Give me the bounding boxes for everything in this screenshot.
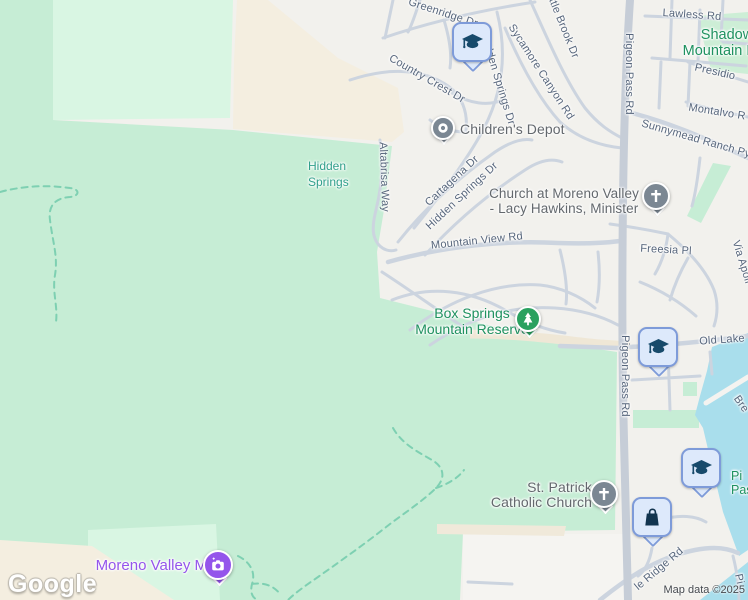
poi-label-childrens-depot[interactable]: Children's Depot — [460, 121, 565, 137]
tree-icon — [520, 311, 536, 327]
church-pin-1[interactable] — [642, 182, 670, 218]
park-label-line: Shadow — [672, 27, 748, 43]
map-viewport[interactable]: Greenridge Dr Little Brook Dr Lawless Rd… — [0, 0, 748, 600]
camera-icon — [209, 556, 227, 574]
google-logo[interactable]: Google — [8, 570, 97, 599]
poi-label-church-moreno[interactable]: Church at Moreno Valley - Lacy Hawkins, … — [484, 186, 644, 216]
poi-label-st-patrick[interactable]: St. Patrick Catholic Church — [440, 480, 592, 510]
poi-label-line: - Lacy Hawkins, Minister — [484, 201, 644, 216]
area-label-line: Springs — [308, 174, 349, 190]
street-label-altabrisa: Altabrisa Way — [377, 142, 391, 212]
shopping-pin[interactable] — [632, 497, 672, 549]
map-attribution: Map data ©2025 — [664, 584, 746, 596]
area-label-line: Hidden — [308, 158, 349, 174]
school-pin-2[interactable] — [638, 327, 678, 379]
street-label-pigeon-pass-top: Pigeon Pass Rd — [623, 33, 635, 115]
area-label-hidden-springs: Hidden Springs — [308, 158, 349, 190]
poi-label-line: Catholic Church — [440, 495, 592, 510]
park-label-shadow-mountain[interactable]: Shadow Mountain Pas — [672, 27, 748, 59]
poi-label-line: St. Patrick — [440, 480, 592, 495]
park-label-line: Mountain Pas — [672, 43, 748, 59]
childrens-depot-pin[interactable] — [431, 116, 455, 147]
graduation-cap-icon — [460, 30, 484, 54]
area-label-pigeon-pass: Pi Pass — [731, 469, 748, 497]
shopping-bag-icon — [640, 505, 664, 529]
school-pin-1[interactable] — [452, 22, 492, 74]
poi-label-line: Church at Moreno Valley — [484, 186, 644, 201]
graduation-cap-icon — [689, 456, 713, 480]
photo-spot-pin[interactable] — [203, 550, 233, 588]
area-label-line: Pass — [731, 483, 748, 497]
box-springs-pin[interactable] — [515, 306, 541, 340]
church-pin-2[interactable] — [590, 480, 618, 516]
area-label-line: Pi — [731, 469, 748, 483]
dot-icon — [436, 121, 450, 135]
cross-icon — [596, 486, 612, 502]
street-label-pigeon-pass-mid: Pigeon Pass Rd — [619, 335, 631, 417]
cross-icon — [648, 188, 664, 204]
school-pin-3[interactable] — [681, 448, 721, 500]
graduation-cap-icon — [646, 335, 670, 359]
